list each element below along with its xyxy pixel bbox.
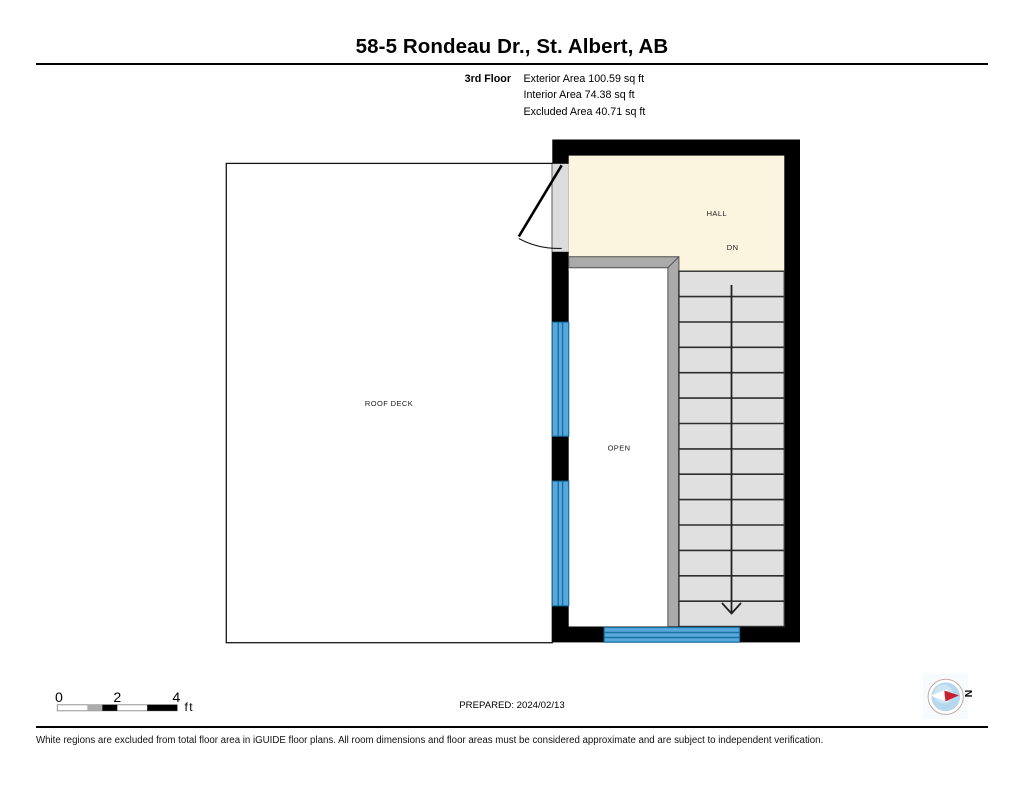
svg-text:HALL: HALL bbox=[707, 209, 727, 218]
svg-text:DN: DN bbox=[727, 243, 739, 252]
svg-text:OPEN: OPEN bbox=[608, 444, 631, 453]
svg-text:ROOF DECK: ROOF DECK bbox=[365, 399, 413, 408]
svg-text:N: N bbox=[962, 690, 974, 698]
